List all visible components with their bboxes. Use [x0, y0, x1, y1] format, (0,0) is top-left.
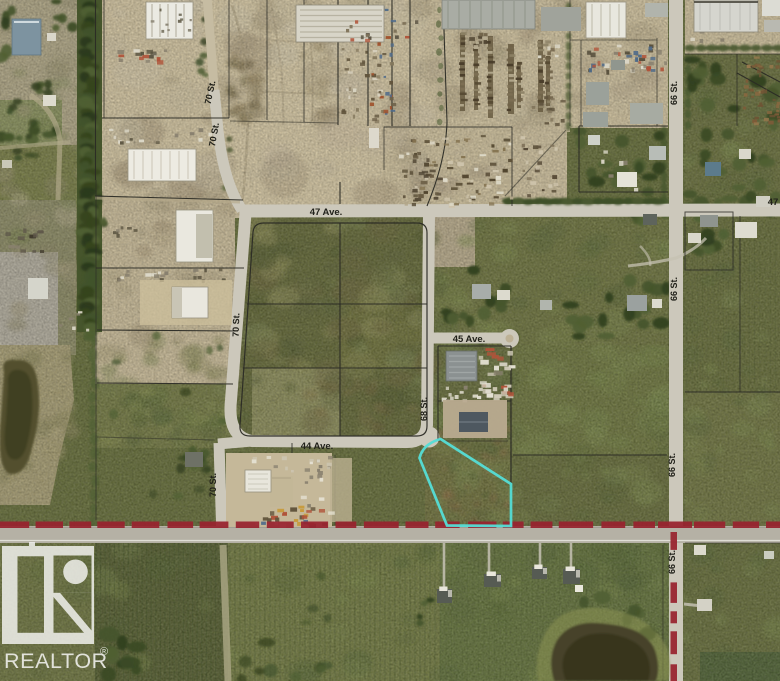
svg-text:REALTOR: REALTOR	[4, 649, 108, 673]
svg-text:45 Ave.: 45 Ave.	[453, 334, 486, 345]
svg-text:66 St.: 66 St.	[667, 453, 677, 477]
svg-text:44 Ave.: 44 Ave.	[301, 441, 334, 452]
svg-text:47 Ave.: 47 Ave.	[768, 197, 780, 208]
svg-text:66 St.: 66 St.	[669, 277, 679, 301]
svg-text:47 Ave.: 47 Ave.	[310, 207, 343, 218]
svg-text:66 St.: 66 St.	[669, 81, 679, 105]
svg-text:70 St.: 70 St.	[231, 313, 242, 337]
svg-text:70 St.: 70 St.	[208, 473, 218, 497]
svg-text:68 St.: 68 St.	[419, 397, 429, 421]
svg-text:®: ®	[100, 646, 108, 658]
svg-text:66 St.: 66 St.	[667, 550, 677, 574]
